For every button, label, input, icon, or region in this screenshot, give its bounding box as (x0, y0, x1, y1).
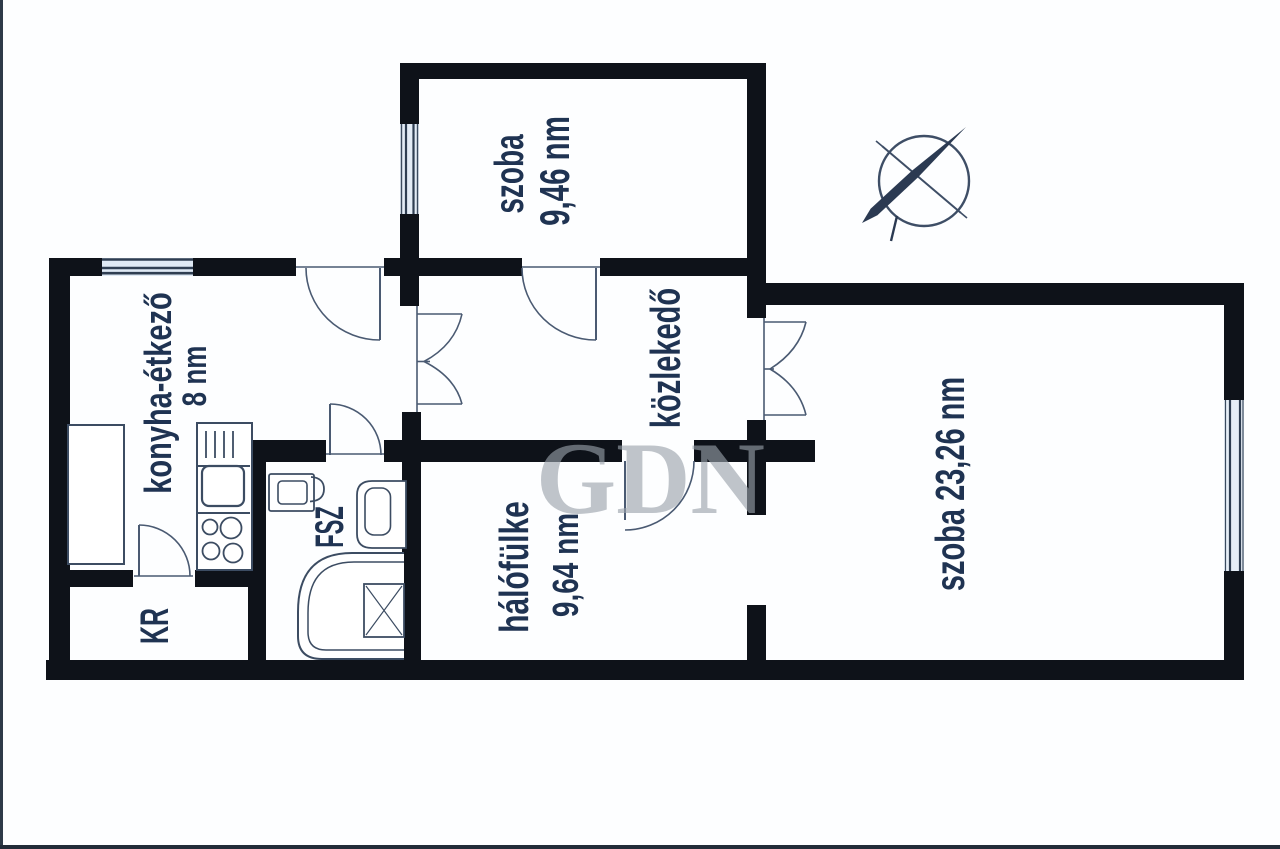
svg-text:szoba 23,26 nm: szoba 23,26 nm (928, 377, 973, 591)
svg-text:9,46 nm: 9,46 nm (532, 116, 578, 226)
svg-text:KR: KR (133, 608, 177, 644)
svg-text:konyha-étkező: konyha-étkező (138, 292, 179, 493)
svg-text:GDN: GDN (536, 422, 765, 536)
svg-text:8 nm: 8 nm (177, 346, 214, 407)
svg-text:hálófülke: hálófülke (492, 501, 537, 633)
svg-text:FSZ: FSZ (307, 506, 352, 548)
svg-text:szoba: szoba (487, 134, 532, 214)
svg-text:közlekedő: közlekedő (642, 288, 690, 428)
